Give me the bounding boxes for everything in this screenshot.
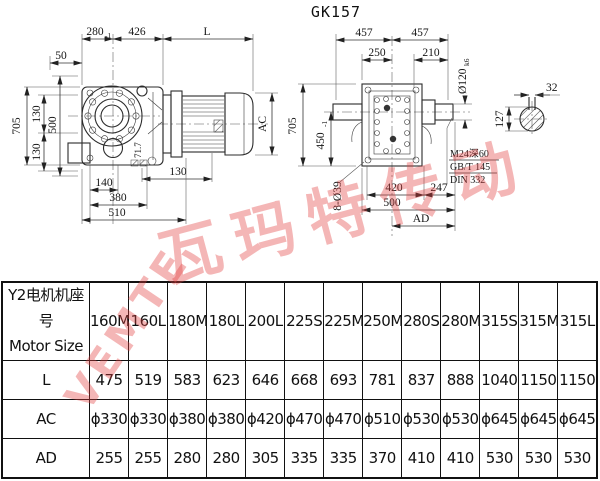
table-cell: ϕ510 xyxy=(363,399,402,438)
table-cell: 335 xyxy=(324,438,363,478)
table-cell: ϕ530 xyxy=(441,399,480,438)
table-cell: 888 xyxy=(441,360,480,399)
dim-450-label: 450 xyxy=(315,132,327,150)
table-cell: 530 xyxy=(558,438,597,478)
column-header: 200L xyxy=(246,282,285,360)
dim-705-left-label: 705 xyxy=(11,117,23,135)
oil-plug-lower xyxy=(390,136,396,142)
table-cell: 410 xyxy=(402,438,441,478)
table-cell: 668 xyxy=(285,360,324,399)
note-tap-label: M24深60 xyxy=(450,148,489,160)
table-row: AD25525528028030533533537041041053053053… xyxy=(2,438,597,478)
dim-AD-label: AD xyxy=(413,213,430,225)
table-cell: ϕ380 xyxy=(207,399,246,438)
row-label: AC xyxy=(2,399,90,438)
dim-426-label: 426 xyxy=(128,26,146,38)
table-cell: 335 xyxy=(285,438,324,478)
column-header: 225S xyxy=(285,282,324,360)
table-cell: 1150 xyxy=(519,360,558,399)
table-cell: 530 xyxy=(519,438,558,478)
table-cell: 646 xyxy=(246,360,285,399)
dim-457-right-label: 457 xyxy=(411,27,429,39)
table-cell: ϕ645 xyxy=(519,399,558,438)
size-table: Y2电机机座号Motor Size160M160L180M180L200L225… xyxy=(1,281,598,479)
table-cell: ϕ530 xyxy=(402,399,441,438)
dim-250-label: 250 xyxy=(368,47,386,59)
dim-32-label: 32 xyxy=(546,82,558,94)
dim-127-label: 127 xyxy=(494,110,506,128)
dim-280-tolerance: -1 xyxy=(105,31,111,40)
dim-dia120-label: Ø120 xyxy=(457,68,469,94)
table-cell: 583 xyxy=(168,360,207,399)
dim-380-label: 380 xyxy=(109,192,127,204)
table-cell: ϕ470 xyxy=(285,399,324,438)
table-cell: 255 xyxy=(129,438,168,478)
motor-size-header: Y2电机机座号Motor Size xyxy=(2,282,90,360)
dim-705-right-label: 705 xyxy=(287,117,299,135)
column-header: 280M xyxy=(441,282,480,360)
table-cell: ϕ380 xyxy=(168,399,207,438)
motor-size-header-cn: Y2电机机座号 xyxy=(3,283,89,334)
technical-drawing: 71.7 280 -1 426 L xyxy=(0,0,600,280)
table-cell: 1150 xyxy=(558,360,597,399)
column-header: 315M xyxy=(519,282,558,360)
dim-AC-label: AC xyxy=(257,116,269,132)
dim-130-foot-label: 130 xyxy=(169,166,187,178)
table-row: L475519583623646668693781837888104011501… xyxy=(2,360,597,399)
note-din-label: DIN 332 xyxy=(450,175,485,186)
table-cell: ϕ645 xyxy=(480,399,519,438)
row-label: L xyxy=(2,360,90,399)
table-cell: ϕ330 xyxy=(90,399,129,438)
column-header: 315L xyxy=(558,282,597,360)
table-cell: 1040 xyxy=(480,360,519,399)
dim-holes-label: 8-Ø39 xyxy=(332,181,344,211)
dim-130-top-label: 130 xyxy=(31,105,43,123)
column-header: 225M xyxy=(324,282,363,360)
dim-247-label: 247 xyxy=(430,182,448,194)
column-header: 180L xyxy=(207,282,246,360)
table-cell: 693 xyxy=(324,360,363,399)
shaft-section-circle xyxy=(520,107,544,131)
table-cell: 370 xyxy=(363,438,402,478)
column-header: 180M xyxy=(168,282,207,360)
dim-140-label: 140 xyxy=(95,177,113,189)
column-header: 280S xyxy=(402,282,441,360)
table-cell: ϕ330 xyxy=(129,399,168,438)
dim-500-label: 500 xyxy=(383,197,401,209)
column-header: 160L xyxy=(129,282,168,360)
dim-510-label: 510 xyxy=(108,207,126,219)
dim-450-tolerance: -1 xyxy=(320,121,329,127)
table-cell: 305 xyxy=(246,438,285,478)
table-cell: 280 xyxy=(168,438,207,478)
gearbox-housing-outline xyxy=(82,87,163,165)
dim-dia120-tolerance: k6 xyxy=(462,58,471,66)
dim-280-label: 280 xyxy=(86,26,104,38)
table-cell: 837 xyxy=(402,360,441,399)
row-label: AD xyxy=(2,438,90,478)
note-gbt-label: GB/T 145 xyxy=(450,162,490,173)
foot-plate xyxy=(68,143,90,163)
table-cell: ϕ420 xyxy=(246,399,285,438)
shaft-cross-section: 32 127 xyxy=(494,82,560,137)
drawing-title: GK157 xyxy=(311,3,361,21)
table-cell: 475 xyxy=(90,360,129,399)
column-header: 315S xyxy=(480,282,519,360)
column-header: 160M xyxy=(90,282,129,360)
dim-50-label: 50 xyxy=(55,50,67,62)
oil-plug-upper xyxy=(384,105,390,111)
right-view: 457 457 250 210 Ø120 k6 705 450 -1 8-Ø39 xyxy=(287,27,499,236)
table-row: ACϕ330ϕ330ϕ380ϕ380ϕ420ϕ470ϕ470ϕ510ϕ530ϕ5… xyxy=(2,399,597,438)
dim-457-left-label: 457 xyxy=(355,27,373,39)
table-cell: ϕ645 xyxy=(558,399,597,438)
dim-210-label: 210 xyxy=(422,47,440,59)
table-cell: 781 xyxy=(363,360,402,399)
left-view: 71.7 280 -1 426 L xyxy=(11,26,278,224)
table-cell: 623 xyxy=(207,360,246,399)
table-cell: 519 xyxy=(129,360,168,399)
table-cell: 280 xyxy=(207,438,246,478)
dim-L-label: L xyxy=(203,26,210,38)
motor-size-header-en: Motor Size xyxy=(3,334,89,360)
table-cell: 530 xyxy=(480,438,519,478)
dim-500-label: 500 xyxy=(47,116,59,134)
column-header: 250M xyxy=(363,282,402,360)
dim-420-label: 420 xyxy=(385,182,403,194)
table-cell: 255 xyxy=(90,438,129,478)
table-cell: ϕ470 xyxy=(324,399,363,438)
table-cell: 410 xyxy=(441,438,480,478)
dim-angle-label: 71.7 xyxy=(133,142,143,158)
dim-130-mid-label: 130 xyxy=(31,143,43,161)
